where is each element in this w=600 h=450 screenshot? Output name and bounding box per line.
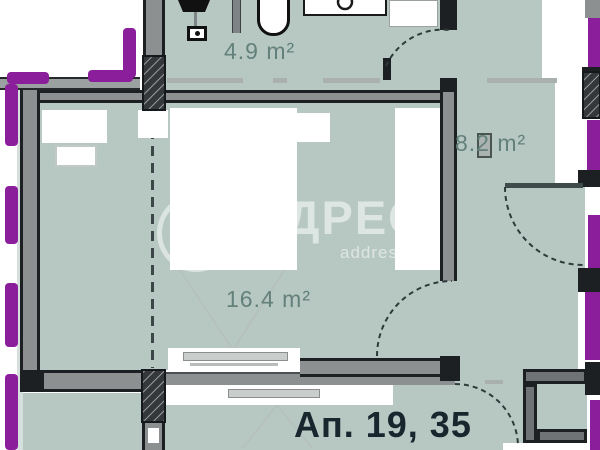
boundary-segment <box>588 215 600 268</box>
boundary-segment <box>587 120 600 170</box>
hatched-wall-block <box>583 72 600 118</box>
detail-layer <box>0 0 600 450</box>
hatched-wall-block <box>143 56 165 110</box>
floor-plan: ДРЕС address <box>0 0 600 450</box>
door-arc-bedroom <box>377 281 452 356</box>
boundary-segment <box>5 374 18 450</box>
shower-head-icon <box>178 0 210 12</box>
bedroom-area-label: 16.4 m² <box>226 286 311 313</box>
boundary-segment <box>588 18 600 67</box>
bathroom-area-label: 4.9 m² <box>224 38 295 65</box>
boundary-segment <box>5 84 18 146</box>
boundary-segment <box>7 72 49 84</box>
door-arc-bathroom <box>386 30 449 66</box>
boundary-segment <box>585 292 600 360</box>
door-arc-entrance <box>505 187 583 265</box>
corridor-area-label: 8.2 m² <box>455 130 526 157</box>
boundary-segment <box>590 400 600 450</box>
hatched-wall-block <box>142 370 165 422</box>
apartment-number-label: Ап. 19, 35 <box>294 404 472 446</box>
sink-faucet-icon <box>338 0 352 9</box>
boundary-segment <box>5 283 18 347</box>
boundary-segment <box>5 186 18 244</box>
boundary-segment <box>88 70 133 82</box>
